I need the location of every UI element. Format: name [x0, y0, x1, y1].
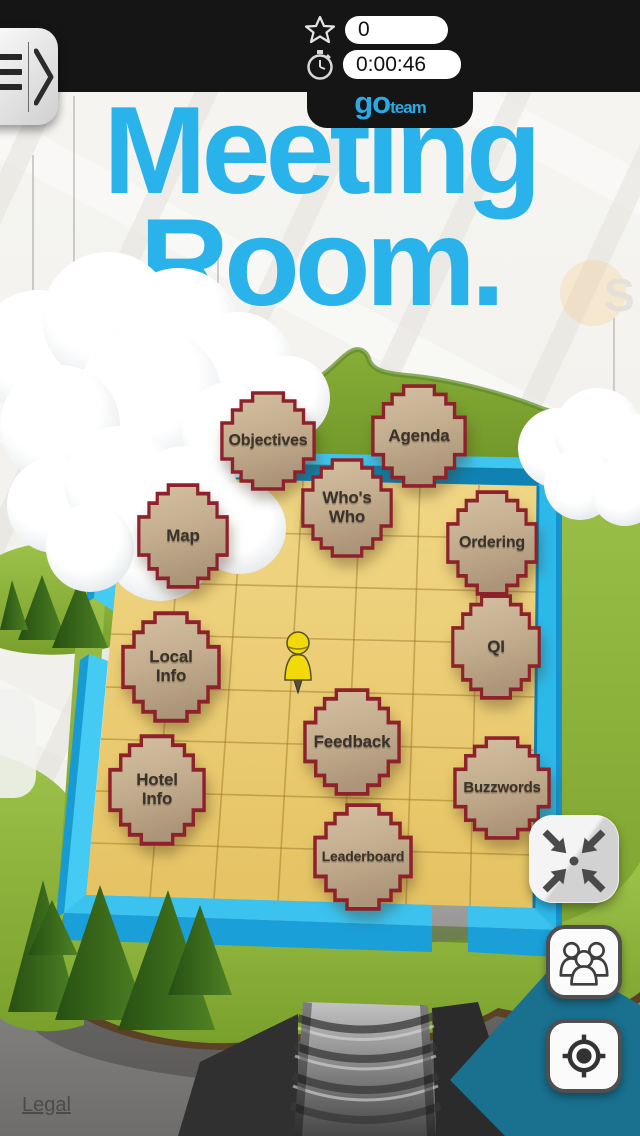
island-scene — [0, 0, 640, 1136]
hamburger-icon — [0, 54, 22, 99]
tile-label: QI — [451, 594, 541, 700]
locate-target-icon — [550, 1023, 618, 1089]
tile-label: Map — [137, 483, 229, 589]
score-value: 0 — [358, 18, 370, 42]
tile-label: Who's Who — [301, 458, 393, 558]
teams-button[interactable] — [546, 925, 622, 999]
locate-button[interactable] — [546, 1019, 622, 1093]
chevron-right-icon — [34, 48, 54, 106]
tile-qi[interactable]: QI — [451, 594, 541, 700]
tile-label: Ordering — [446, 490, 538, 596]
menu-open-button[interactable] — [0, 28, 58, 125]
desk-object — [0, 690, 36, 798]
tile-leaderboard[interactable]: Leaderboard — [313, 803, 413, 911]
score-pill: 0 — [345, 16, 448, 44]
group-icon — [550, 929, 618, 995]
tile-map[interactable]: Map — [137, 483, 229, 589]
tile-label: Local Info — [121, 611, 221, 723]
tile-hotel-info[interactable]: Hotel Info — [108, 734, 206, 846]
stopwatch-icon — [304, 48, 336, 82]
legal-link[interactable]: Legal — [22, 1094, 71, 1117]
zoom-fit-button[interactable] — [529, 815, 619, 903]
timer-value: 0:00:46 — [356, 53, 426, 77]
tile-feedback[interactable]: Feedback — [303, 688, 401, 796]
timer-pill: 0:00:46 — [343, 50, 461, 79]
player-avatar — [279, 630, 317, 694]
tile-ordering[interactable]: Ordering — [446, 490, 538, 596]
logo-part2: team — [390, 98, 426, 117]
tile-label: Leaderboard — [313, 803, 413, 911]
tile-label: Feedback — [303, 688, 401, 796]
tile-label: Hotel Info — [108, 734, 206, 846]
menu-divider — [28, 42, 29, 112]
star-icon — [304, 15, 336, 45]
app-screen: S Meeting Room. — [0, 0, 640, 1136]
collapse-arrows-icon — [539, 826, 610, 897]
tile-whos-who[interactable]: Who's Who — [301, 458, 393, 558]
tile-local-info[interactable]: Local Info — [121, 611, 221, 723]
